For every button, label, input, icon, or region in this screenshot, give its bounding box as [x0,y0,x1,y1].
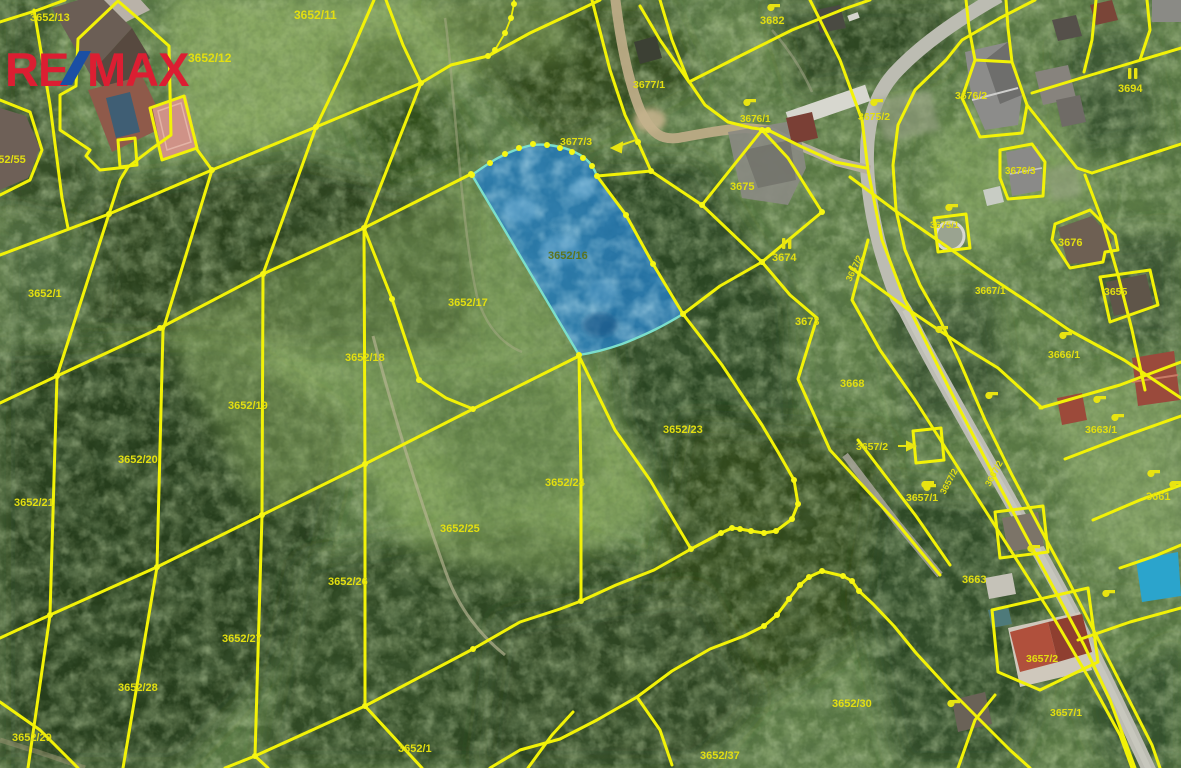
svg-text:3652/20: 3652/20 [118,454,158,466]
svg-text:3675/1: 3675/1 [930,220,960,231]
svg-text:RE: RE [5,43,68,96]
svg-text:3666/1: 3666/1 [1048,349,1080,361]
svg-text:3652/1: 3652/1 [28,288,62,300]
svg-text:3652/30: 3652/30 [832,698,872,710]
svg-text:3674: 3674 [772,252,797,264]
svg-text:3657/2: 3657/2 [1026,653,1058,665]
svg-text:3652/1: 3652/1 [398,743,432,755]
svg-text:3676/3: 3676/3 [1005,166,1036,177]
svg-text:3682: 3682 [760,15,784,27]
svg-text:3652/19: 3652/19 [228,400,268,412]
svg-text:3652/16: 3652/16 [548,250,588,262]
svg-text:3676/1: 3676/1 [740,114,771,125]
svg-text:3667/1: 3667/1 [975,286,1006,297]
svg-text:3676: 3676 [1058,237,1082,249]
svg-text:3652/18: 3652/18 [345,352,385,364]
svg-text:3652/26: 3652/26 [328,576,368,588]
svg-text:3694: 3694 [1118,83,1143,95]
svg-text:3652/24: 3652/24 [545,477,586,489]
svg-text:MAX: MAX [87,43,189,96]
svg-text:3663/1: 3663/1 [1085,424,1117,436]
svg-text:3652/12: 3652/12 [188,51,232,65]
svg-text:3657/1: 3657/1 [1050,707,1082,719]
svg-text:3675/2: 3675/2 [858,111,890,123]
svg-text:3652/17: 3652/17 [448,297,488,309]
svg-text:3652/25: 3652/25 [440,523,480,535]
svg-text:3657/2: 3657/2 [856,441,888,453]
svg-text:3677/1: 3677/1 [633,79,665,91]
svg-text:3668: 3668 [840,378,864,390]
svg-text:3673: 3673 [795,316,819,328]
svg-text:3652/37: 3652/37 [700,750,740,762]
svg-text:3652/23: 3652/23 [663,424,703,436]
svg-text:3661: 3661 [1146,491,1170,503]
svg-text:3652/27: 3652/27 [222,633,262,645]
svg-text:3652/13: 3652/13 [30,12,70,24]
svg-text:3675: 3675 [730,181,754,193]
svg-text:3652/55: 3652/55 [0,154,26,166]
svg-text:3652/29: 3652/29 [12,732,52,744]
svg-text:3652/28: 3652/28 [118,682,158,694]
svg-text:3655: 3655 [1104,286,1128,298]
svg-text:3677/3: 3677/3 [560,136,592,148]
svg-text:3657/1: 3657/1 [906,492,938,504]
svg-text:3663: 3663 [962,574,986,586]
svg-text:3652/21: 3652/21 [14,497,54,509]
svg-text:3676/2: 3676/2 [955,90,987,102]
svg-text:3652/11: 3652/11 [294,8,337,22]
